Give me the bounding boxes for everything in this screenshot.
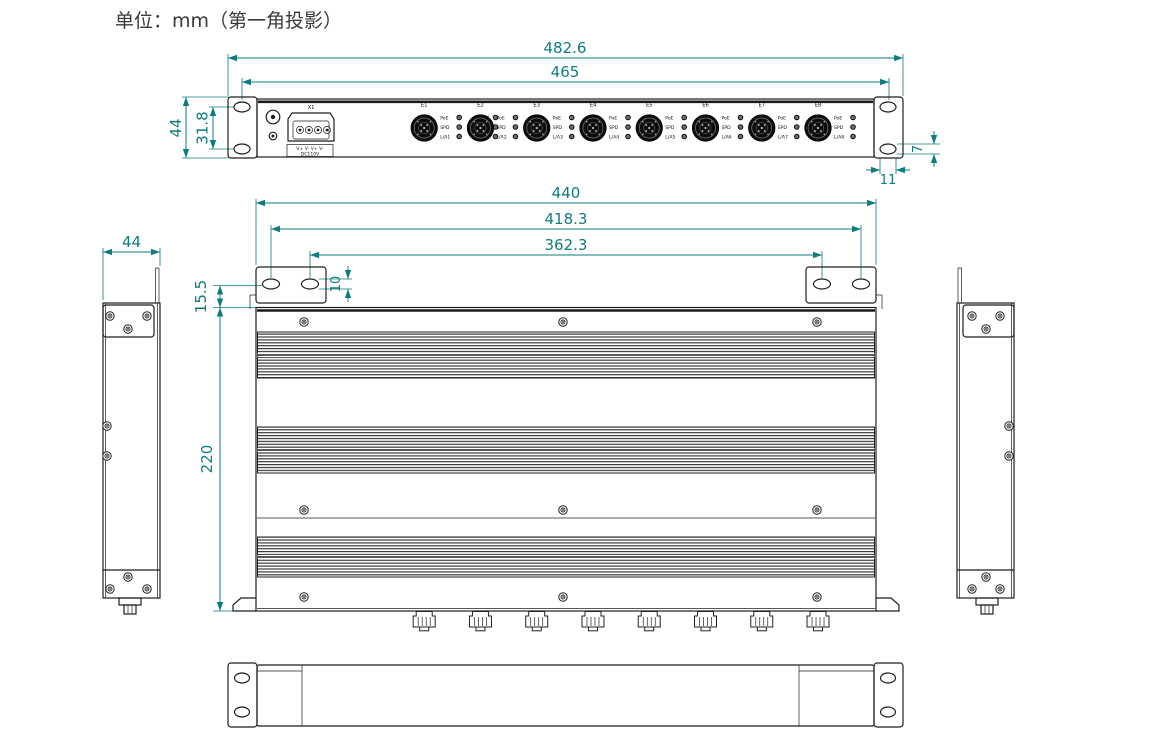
dim-top-slot-height: 10 [319, 266, 352, 302]
dim-text-31-8: 31.8 [194, 111, 212, 144]
dim-text-440: 440 [552, 184, 581, 202]
terminal-polarity-label: V+ V- V+ V- [296, 146, 324, 152]
port-led-label: SPD [496, 125, 506, 131]
mounting-slot [814, 279, 831, 289]
port-led-label: L/A6 [722, 134, 732, 140]
port-e8: E8PoESPDL/A8 [805, 103, 856, 142]
mounting-slot [235, 673, 250, 683]
dim-text-362-3: 362.3 [545, 236, 588, 254]
left-body [103, 303, 160, 598]
port-led-label: SPD [440, 125, 450, 131]
screw-icon [1005, 452, 1013, 460]
mounting-slot [234, 102, 250, 112]
top-left-bend [250, 295, 256, 309]
dim-text-482-6: 482.6 [544, 39, 587, 57]
bottom-port-connectors [413, 612, 829, 631]
port-led-label: SPD [609, 125, 619, 131]
port-e3: E3PoESPDL/A3 [524, 103, 575, 142]
dim-side-width: 44 [103, 233, 160, 300]
m12-connector-icon [805, 115, 831, 141]
dim-text-side-44: 44 [122, 233, 141, 251]
screw-icon [813, 593, 821, 601]
port-e2: E2PoESPDL/A2 [467, 103, 518, 142]
rear-panel [257, 665, 874, 726]
dim-top-inner-slot-spacing: 362.3 [310, 236, 822, 278]
screw-icon [103, 452, 111, 460]
port-led-label: L/A1 [440, 134, 450, 140]
left-side-view: 44 [103, 233, 160, 614]
dim-top-ear-offset: 15.5 [192, 280, 262, 313]
port-label: E5 [646, 103, 653, 109]
port-led-label: SPD [834, 125, 844, 131]
dim-text-465: 465 [551, 63, 580, 81]
panel-connector-stub [413, 612, 435, 631]
led-icon [682, 134, 687, 139]
screw-icon [124, 325, 132, 333]
port-led-label: L/A3 [553, 134, 563, 140]
led-icon [626, 134, 631, 139]
panel-connector-stub [469, 612, 491, 631]
port-e6: E6PoESPDL/A6 [692, 103, 743, 142]
left-bottom-connector [119, 598, 141, 614]
port-led-label: PoE [496, 115, 504, 121]
screw-icon [559, 506, 567, 514]
screw-icon [813, 506, 821, 514]
screw-icon [106, 585, 114, 593]
screw-icon [103, 422, 111, 430]
port-label: E1 [421, 103, 428, 109]
screw-icon [996, 585, 1004, 593]
m12-connector-icon [580, 115, 606, 141]
port-led-label: SPD [665, 125, 675, 131]
technical-drawing: 单位：mm（第一角投影） 482.6 465 44 31.8 [0, 0, 1154, 748]
port-e5: E5PoESPDL/A5 [636, 103, 687, 142]
port-led-label: L/A4 [609, 134, 619, 140]
screw-icon [300, 318, 308, 326]
power-terminal-block: X1 V+ V- V+ V- DC110V [287, 105, 334, 158]
mounting-slot [881, 707, 896, 717]
led-icon [794, 125, 799, 130]
m12-connector-icon [692, 115, 718, 141]
dim-front-slot-width: 11 [866, 158, 910, 188]
right-bottom-connector [976, 598, 998, 614]
terminal-voltage-label: DC110V [301, 152, 321, 158]
terminal-block-label: X1 [308, 105, 315, 111]
right-side-view [957, 268, 1014, 614]
m12-connector-icon [524, 115, 550, 141]
port-led-label: SPD [778, 125, 788, 131]
port-block: E1PoESPDL/A1E2PoESPDL/A2E3PoESPDL/A3E4Po… [411, 103, 855, 142]
led-icon [457, 134, 462, 139]
port-led-label: PoE [665, 115, 673, 121]
port-label: E2 [477, 103, 484, 109]
port-led-label: L/A7 [778, 134, 788, 140]
screw-icon [968, 312, 976, 320]
dim-text-10: 10 [329, 276, 344, 293]
top-left-foot [233, 598, 256, 611]
led-icon [738, 134, 743, 139]
port-led-label: L/A5 [665, 134, 675, 140]
led-icon [738, 115, 743, 120]
screw-icon [982, 325, 990, 333]
screw-icon [982, 573, 990, 581]
dim-top-body-depth: 220 [198, 308, 256, 612]
port-led-label: L/A2 [496, 134, 506, 140]
led-icon [794, 134, 799, 139]
port-label: E6 [702, 103, 709, 109]
port-led-label: PoE [440, 115, 448, 121]
dim-text-11: 11 [880, 173, 897, 188]
port-led-label: SPD [553, 125, 563, 131]
led-icon [682, 125, 687, 130]
dim-text-418-3: 418.3 [545, 210, 588, 228]
port-e7: E7PoESPDL/A7 [749, 103, 800, 142]
mounting-slot [263, 279, 280, 289]
led-icon [626, 125, 631, 130]
dim-text-220: 220 [198, 445, 216, 474]
mounting-slot [881, 673, 896, 683]
mounting-slot [235, 707, 250, 717]
port-led-label: PoE [553, 115, 561, 121]
left-ear-edge [156, 268, 160, 303]
screw-icon [559, 318, 567, 326]
ground-terminal-icon [266, 110, 280, 140]
port-led-label: PoE [609, 115, 617, 121]
m12-connector-icon [749, 115, 775, 141]
dim-front-mount-width: 465 [242, 63, 889, 100]
dim-text-15-5: 15.5 [192, 280, 210, 313]
panel-connector-stub [695, 612, 717, 631]
panel-connector-stub [582, 612, 604, 631]
led-icon [569, 115, 574, 120]
led-icon [513, 125, 518, 130]
screw-icon [996, 312, 1004, 320]
led-icon [457, 115, 462, 120]
screw-icon [300, 593, 308, 601]
screw-icon [968, 585, 976, 593]
led-icon [513, 115, 518, 120]
port-led-label: PoE [834, 115, 842, 121]
m12-connector-icon [467, 115, 493, 141]
right-screws [968, 312, 1013, 593]
m12-connector-icon [411, 115, 437, 141]
mechanical-drawing-page: 单位：mm（第一角投影） 482.6 465 44 31.8 [0, 0, 1154, 748]
dim-text-44: 44 [167, 118, 185, 137]
top-right-bend [876, 295, 882, 309]
led-icon [457, 125, 462, 130]
led-icon [851, 115, 856, 120]
right-body [957, 303, 1014, 598]
led-icon [569, 125, 574, 130]
panel-connector-stub [807, 612, 829, 631]
port-led-label: PoE [778, 115, 786, 121]
m12-connector-icon [636, 115, 662, 141]
panel-connector-stub [526, 612, 548, 631]
rear-view [228, 663, 903, 727]
panel-connector-stub [751, 612, 773, 631]
led-icon [569, 134, 574, 139]
port-led-label: SPD [722, 125, 732, 131]
port-led-label: PoE [722, 115, 730, 121]
led-icon [513, 134, 518, 139]
port-label: E3 [533, 103, 540, 109]
left-screws [103, 312, 151, 593]
terminal-screws [296, 126, 330, 133]
screw-icon [300, 506, 308, 514]
led-icon [626, 115, 631, 120]
screw-icon [1005, 422, 1013, 430]
mounting-slot [302, 279, 319, 289]
screw-icon [813, 318, 821, 326]
port-label: E7 [758, 103, 765, 109]
port-led-label: L/A8 [834, 134, 844, 140]
panel-connector-stub [638, 612, 660, 631]
port-label: E4 [590, 103, 597, 109]
dim-text-7: 7 [911, 145, 926, 153]
led-icon [851, 125, 856, 130]
led-icon [794, 115, 799, 120]
top-right-foot [876, 598, 899, 611]
port-e4: E4PoESPDL/A4 [580, 103, 631, 142]
screw-icon [124, 573, 132, 581]
mounting-slot [234, 144, 250, 154]
screw-icon [143, 585, 151, 593]
top-view: 440 418.3 362.3 10 15.5 [192, 184, 899, 631]
mounting-slot [880, 102, 896, 112]
led-icon [682, 115, 687, 120]
units-note: 单位：mm（第一角投影） [115, 10, 342, 32]
screw-icon [559, 593, 567, 601]
led-icon [738, 125, 743, 130]
mounting-slot [853, 279, 870, 289]
port-e1: E1PoESPDL/A1 [411, 103, 462, 142]
mounting-slot [880, 144, 896, 154]
screw-icon [106, 312, 114, 320]
heatsink-fins [258, 332, 875, 577]
front-view: 482.6 465 44 31.8 11 [167, 39, 940, 188]
right-ear-edge [958, 268, 962, 303]
led-icon [851, 134, 856, 139]
screw-icon [143, 312, 151, 320]
port-label: E8 [815, 103, 822, 109]
